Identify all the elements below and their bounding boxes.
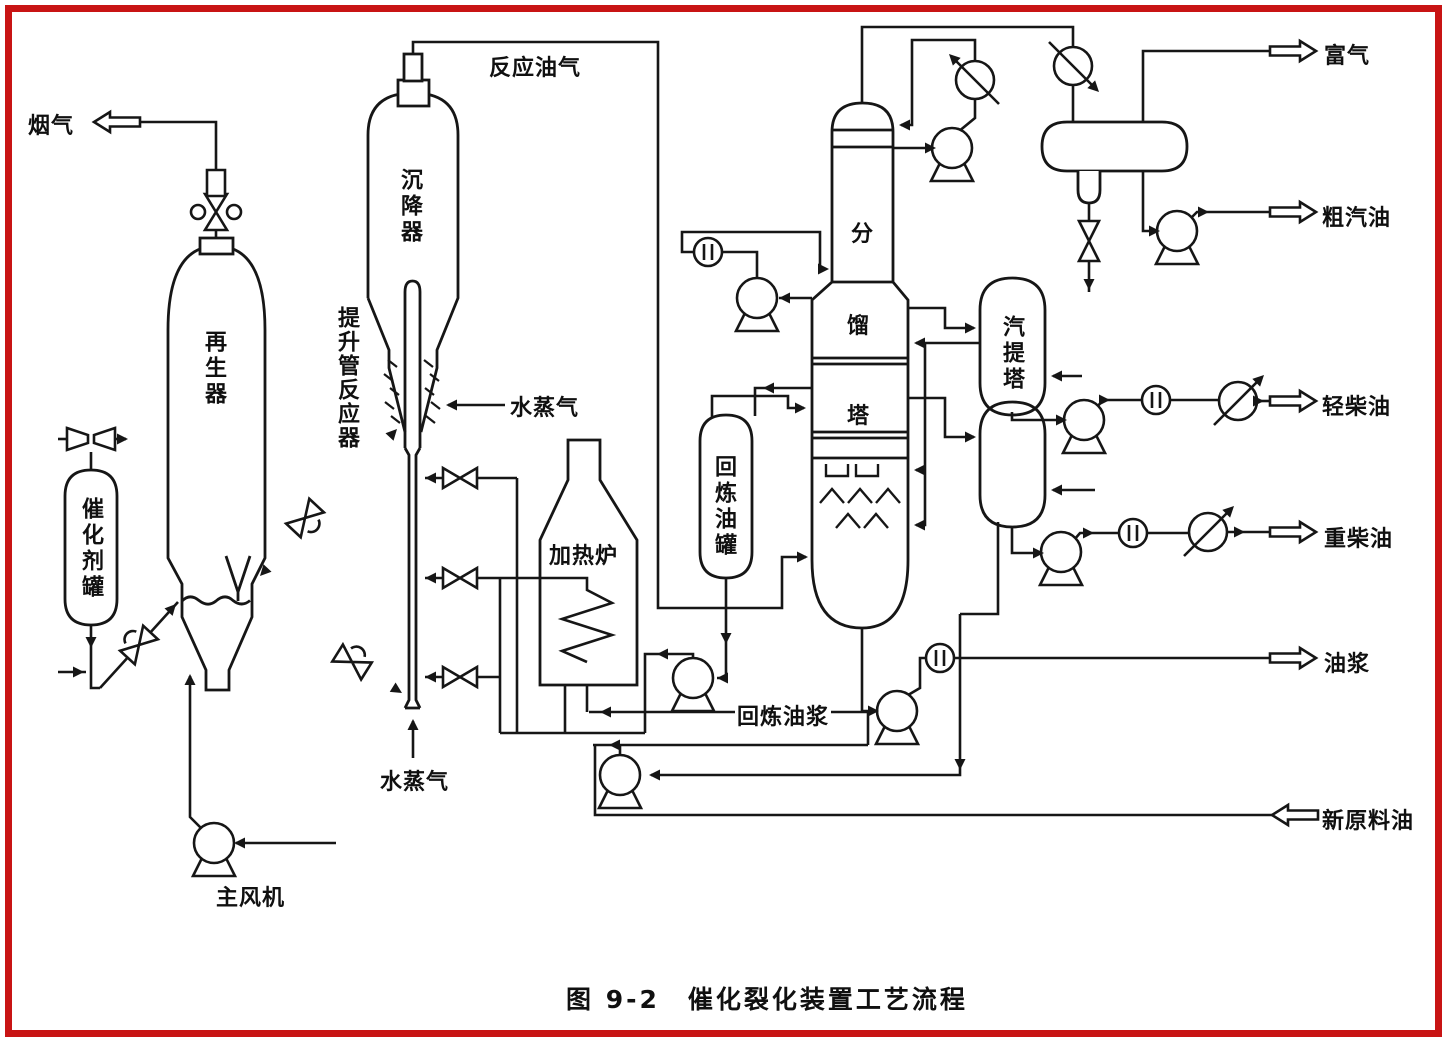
heavy-diesel-arrow-icon <box>1270 522 1316 542</box>
rich-gas-pipe <box>1143 51 1270 122</box>
flue-gas-arrow-icon <box>94 112 140 132</box>
stripper-feed-pipe <box>908 308 974 328</box>
stripper-branch-pipe <box>916 343 925 525</box>
arrowhead <box>779 293 790 304</box>
crude-gasoline-label: 粗汽油 <box>1322 200 1391 232</box>
arrowhead <box>446 400 457 411</box>
fresh-feed-label: 新原料油 <box>1322 803 1414 835</box>
recycle-slurry-label: 回炼油浆 <box>735 699 831 731</box>
fractionator-label-char3: 塔 <box>847 398 870 430</box>
main-blower-label: 主风机 <box>216 880 285 912</box>
arrowhead <box>73 667 84 678</box>
plug-valve-icon <box>115 621 158 664</box>
regenerator-label: 再生器 <box>202 330 224 408</box>
rich-gas-arrow-icon <box>1270 41 1316 61</box>
main-blower-icon <box>193 823 235 876</box>
regenerator-vessel <box>168 246 265 690</box>
fresh-feed-arrow-icon <box>1272 805 1318 825</box>
settler-top-nozzle <box>398 80 429 106</box>
gasoline-pump-inlet-pipe <box>1143 171 1158 231</box>
arrowhead <box>1253 396 1264 407</box>
arrowhead <box>721 633 732 644</box>
arrowhead <box>1084 279 1095 290</box>
plug-valve-icon <box>332 639 375 680</box>
heater-label: 加热炉 <box>549 538 618 570</box>
condenser-icon <box>1049 42 1103 96</box>
arrowhead <box>234 838 245 849</box>
arrowhead <box>649 770 660 781</box>
arrowhead <box>914 520 925 531</box>
light-diesel-pump-icon <box>1063 400 1105 453</box>
arrowhead <box>717 673 728 684</box>
cooler-icon <box>945 50 999 104</box>
arrowhead <box>425 473 436 484</box>
arrowhead <box>955 759 966 770</box>
arrowhead <box>657 649 668 660</box>
cooler-icon <box>1214 371 1268 425</box>
arrowhead <box>1234 527 1245 538</box>
settler-label: 沉降器 <box>398 168 420 246</box>
flow-meter-icon <box>1119 519 1147 547</box>
figure-caption: 图 9-2 催化裂化装置工艺流程 <box>566 980 968 1016</box>
arrowhead <box>425 573 436 584</box>
arrowhead <box>1198 207 1209 218</box>
reaction-oil-gas-label: 反应油气 <box>489 50 581 82</box>
rich-gas-label: 富气 <box>1324 38 1370 70</box>
slide-valve-icon <box>191 194 241 230</box>
arrowhead <box>1051 371 1062 382</box>
recycle-tank-bottom-pipe <box>717 578 726 678</box>
fractionator-label-char2: 馏 <box>847 308 870 340</box>
light-diesel-label: 轻柴油 <box>1322 389 1391 421</box>
arrowhead <box>899 120 910 131</box>
arrowhead <box>763 383 774 394</box>
stripper-label: 汽提塔 <box>1000 315 1022 393</box>
arrowhead <box>818 264 829 275</box>
oil-slurry-label: 油浆 <box>1324 646 1370 678</box>
arrowhead <box>609 740 620 751</box>
pumparound-pump-icon <box>736 278 778 331</box>
reflux-drum-vessel <box>1042 122 1187 171</box>
process-flow-diagram: 烟气 再生器 沉降器 提升管反应器 反应油气 水蒸气 催化剂罐 加热炉 回炼油罐… <box>0 0 1447 1042</box>
feed-pump-icon <box>599 755 641 808</box>
heavy-diesel-pump-icon <box>1040 532 1082 585</box>
heavy-diesel-label: 重柴油 <box>1324 521 1393 553</box>
regenerator-top-flange <box>200 238 233 254</box>
stripper-lower-feed-pipe <box>908 398 974 437</box>
fractionator-vessel <box>812 103 908 628</box>
blower-discharge-pipe <box>190 676 201 828</box>
catalyst-tank-label: 催化剂罐 <box>79 497 101 601</box>
arrowhead <box>600 707 611 718</box>
oil-slurry-arrow-icon <box>1270 648 1316 668</box>
arrowhead <box>390 683 405 698</box>
cooler-icon <box>1184 502 1238 556</box>
heavy-diesel-pump-inlet <box>1012 527 1042 553</box>
riser-lower-tube <box>405 448 420 708</box>
arrowhead <box>965 323 976 334</box>
arrowhead <box>117 434 128 445</box>
drum-boot <box>1078 171 1100 203</box>
recycle-oil-tank-label: 回炼油罐 <box>712 455 734 559</box>
flue-gas-pipe <box>140 122 216 170</box>
settler-top-stub <box>404 54 422 81</box>
settler-vessel <box>368 93 458 432</box>
reflux-pump-icon <box>931 128 973 181</box>
steam-bottom-label: 水蒸气 <box>380 764 449 796</box>
gate-valve-icon <box>443 667 477 687</box>
arrowhead <box>86 637 97 648</box>
venturi-icon <box>67 428 115 450</box>
arrowhead <box>385 425 401 441</box>
recycle-oil-pump-icon <box>672 658 714 711</box>
slurry-pump-icon <box>876 691 918 744</box>
arrowhead <box>185 674 196 685</box>
arrowhead <box>797 552 808 563</box>
arrowhead <box>425 672 436 683</box>
arrowhead <box>1051 485 1062 496</box>
flow-meter-icon <box>926 644 954 672</box>
arrowhead <box>914 465 925 476</box>
crude-gasoline-arrow-icon <box>1270 202 1316 222</box>
plug-valve-icon <box>286 499 329 542</box>
recycle-draw-pipe <box>755 388 812 416</box>
pumparound-pipe <box>722 252 757 278</box>
reflux-pipe <box>958 99 975 132</box>
flow-meter-icon <box>694 238 722 266</box>
riser-reactor-label: 提升管反应器 <box>335 306 357 450</box>
flue-gas-label: 烟气 <box>28 108 74 140</box>
gate-valve-icon <box>443 468 477 488</box>
fresh-feed-pipe <box>595 745 1272 815</box>
arrowhead <box>408 719 419 730</box>
stripper-bottoms-pipe <box>960 522 998 614</box>
catalyst-tank-bottom-pipe <box>91 625 100 688</box>
heavy-diesel-pipe <box>1074 533 1119 540</box>
arrowhead <box>965 432 976 443</box>
valve-actuator <box>207 170 225 196</box>
fractionator-label-char1: 分 <box>851 216 874 248</box>
arrowhead <box>1083 528 1094 539</box>
drain-valve-icon <box>1079 221 1099 261</box>
flow-meter-icon <box>1142 386 1170 414</box>
arrowhead <box>914 338 925 349</box>
slurry-pump-inlet-pipe <box>862 628 875 711</box>
arrowhead <box>795 403 806 414</box>
steam-mid-label: 水蒸气 <box>510 390 579 422</box>
light-diesel-arrow-icon <box>1270 391 1316 411</box>
gasoline-pump-icon <box>1156 211 1198 264</box>
arrowhead <box>1099 395 1110 406</box>
gate-valve-icon <box>443 568 477 588</box>
